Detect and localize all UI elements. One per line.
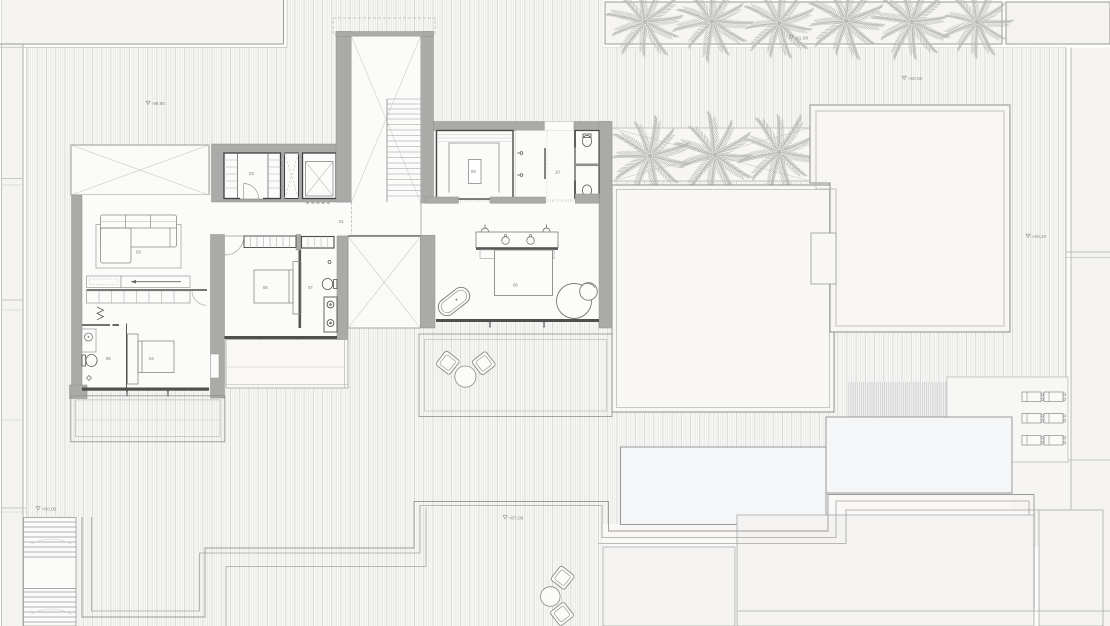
svg-text:08: 08 [513,283,518,288]
svg-text:07: 07 [308,285,313,290]
svg-text:+60,00: +60,00 [42,507,57,513]
svg-text:+60,20: +60,20 [1032,234,1047,240]
svg-text:09: 09 [471,169,476,174]
svg-text:+87,08: +87,08 [509,516,524,522]
svg-text:10: 10 [555,170,560,175]
svg-text:06: 06 [263,285,268,290]
svg-text:03: 03 [136,250,141,255]
svg-text:-91.08: -91.08 [795,36,809,42]
svg-text:+60.00: +60.00 [908,76,923,82]
svg-text:-98.80: -98.80 [152,101,166,107]
svg-text:04: 04 [149,356,154,361]
svg-text:02: 02 [249,171,254,176]
svg-text:01: 01 [339,219,344,224]
svg-text:05: 05 [106,356,111,361]
